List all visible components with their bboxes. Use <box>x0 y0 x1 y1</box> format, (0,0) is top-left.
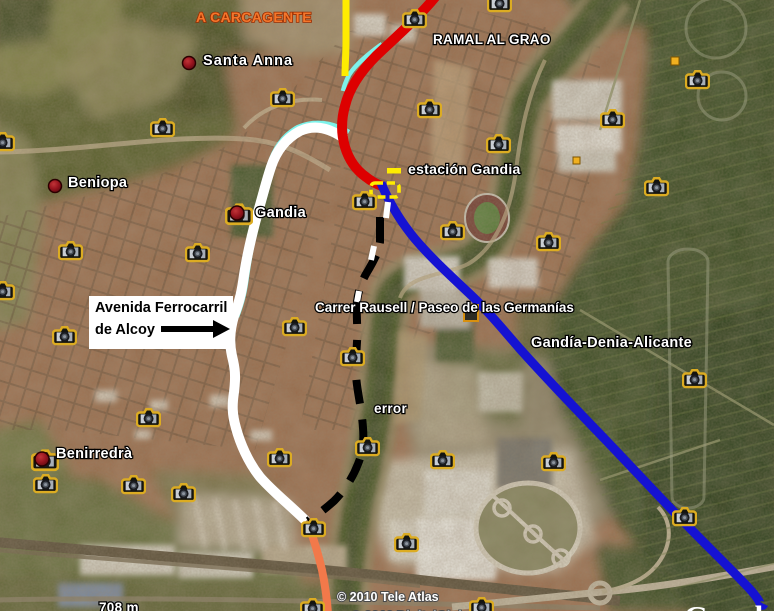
svg-text:Gandia: Gandia <box>255 205 307 221</box>
svg-text:error: error <box>374 401 407 416</box>
svg-text:Carrer Rausell / Paseo de las: Carrer Rausell / Paseo de las Germanías <box>315 300 574 315</box>
svg-text:estación Gandia: estación Gandia <box>408 161 521 177</box>
svg-text:Avenida Ferrocarril: Avenida Ferrocarril <box>95 300 227 316</box>
svg-text:Santa Anna: Santa Anna <box>203 53 293 69</box>
svg-text:708 m: 708 m <box>99 600 139 611</box>
svg-text:de Alcoy: de Alcoy <box>95 322 155 338</box>
svg-text:Gandía-Denia-Alicante: Gandía-Denia-Alicante <box>531 335 692 351</box>
svg-text:Google: Google <box>684 599 774 611</box>
svg-text:© 2010 Tele Atlas: © 2010 Tele Atlas <box>337 590 439 604</box>
svg-text:RAMAL AL GRAO: RAMAL AL GRAO <box>433 32 551 47</box>
svg-text:Beniopa: Beniopa <box>68 175 128 191</box>
svg-text:A CARCAGENTE: A CARCAGENTE <box>196 9 312 25</box>
svg-text:Benirredrà: Benirredrà <box>56 446 133 462</box>
